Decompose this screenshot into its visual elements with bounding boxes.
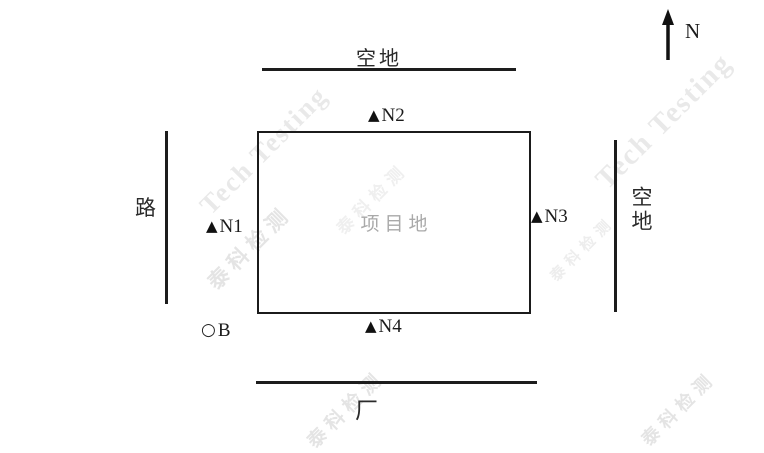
- north-label: N: [685, 19, 700, 44]
- watermark-text: Tech Testing: [589, 47, 739, 197]
- triangle-marker-icon: ▲: [206, 219, 218, 234]
- area-label-bottom-factory: 厂: [355, 391, 378, 425]
- north-arrow: N: [652, 6, 722, 68]
- monitoring-point-n1: ▲ N1: [206, 217, 243, 236]
- boundary-line-top: [262, 68, 516, 71]
- monitoring-point-n3: ▲ N3: [531, 207, 568, 226]
- boundary-line-right: [614, 140, 617, 312]
- area-label-right-vacant: 空地: [626, 186, 656, 234]
- monitoring-point-n2: ▲ N2: [368, 106, 405, 125]
- area-label-left-road: 路: [135, 192, 156, 222]
- project-site-rectangle: 项目地: [257, 131, 531, 314]
- watermark-text: 泰科检测: [635, 365, 721, 451]
- triangle-marker-icon: ▲: [368, 108, 380, 123]
- boundary-line-left: [165, 131, 168, 304]
- boundary-line-bottom: [256, 381, 537, 384]
- circle-marker-icon: ○: [201, 322, 216, 339]
- marker-label: N1: [220, 217, 243, 236]
- marker-label: N3: [545, 207, 568, 226]
- triangle-marker-icon: ▲: [365, 319, 377, 334]
- triangle-marker-icon: ▲: [531, 209, 543, 224]
- monitoring-point-n4: ▲ N4: [365, 317, 402, 336]
- marker-label: N2: [382, 106, 405, 125]
- marker-label: B: [218, 321, 231, 340]
- monitoring-point-b: ○ B: [201, 321, 231, 340]
- project-site-label: 项目地: [355, 209, 432, 236]
- marker-label: N4: [379, 317, 402, 336]
- area-label-top-vacant: 空地: [356, 42, 402, 71]
- site-layout-diagram: Tech Testing 泰科检测 Tech Testing 泰科检测 泰科检测…: [0, 0, 764, 453]
